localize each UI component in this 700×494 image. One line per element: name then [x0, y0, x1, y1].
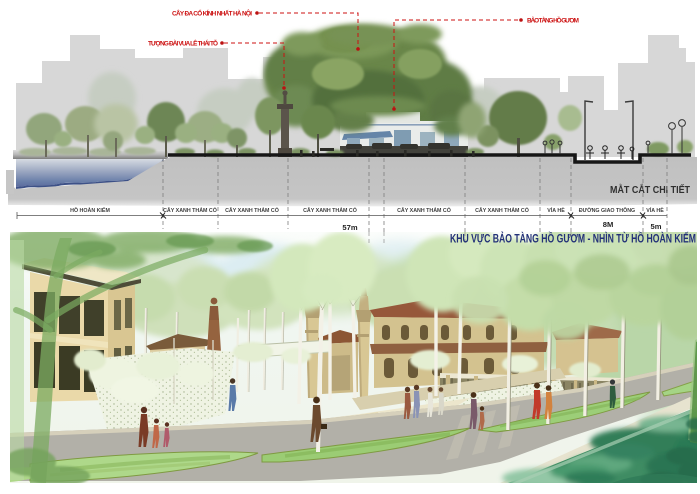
svg-text:CÂY XANH THẢM CỎ: CÂY XANH THẢM CỎ — [303, 207, 357, 214]
svg-text:KHU VỰC BẢO TÀNG HỒ GƯƠM - NHÌ: KHU VỰC BẢO TÀNG HỒ GƯƠM - NHÌN TỪ HỒ HO… — [450, 233, 696, 246]
svg-text:57m: 57m — [342, 223, 357, 232]
svg-text:5m: 5m — [651, 222, 662, 231]
svg-text:VỈA HÈ: VỈA HÈ — [646, 206, 664, 214]
svg-text:8M: 8M — [603, 220, 614, 229]
svg-text:CÂY XANH THẢM CỎ: CÂY XANH THẢM CỎ — [225, 207, 279, 214]
svg-text:ĐƯỜNG GIAO THÔNG: ĐƯỜNG GIAO THÔNG — [579, 206, 635, 214]
svg-text:MẰT CẮT CHI TIẾT: MẰT CẮT CHI TIẾT — [610, 183, 690, 196]
svg-text:CÂY XANH THẢM CỎ: CÂY XANH THẢM CỎ — [475, 207, 529, 214]
svg-text:HỒ HOÀN KIẾM: HỒ HOÀN KIẾM — [70, 207, 110, 214]
svg-text:CÂY XANH THẢM CỎ: CÂY XANH THẢM CỎ — [163, 207, 217, 214]
svg-text:TƯỢNG ĐÀI VUA LÊ THÁI TỖ: TƯỢNG ĐÀI VUA LÊ THÁI TỖ — [148, 39, 218, 48]
svg-text:VỈA HÈ: VỈA HÈ — [547, 206, 565, 214]
svg-text:CÂY XANH THẢM CỎ: CÂY XANH THẢM CỎ — [397, 207, 451, 214]
